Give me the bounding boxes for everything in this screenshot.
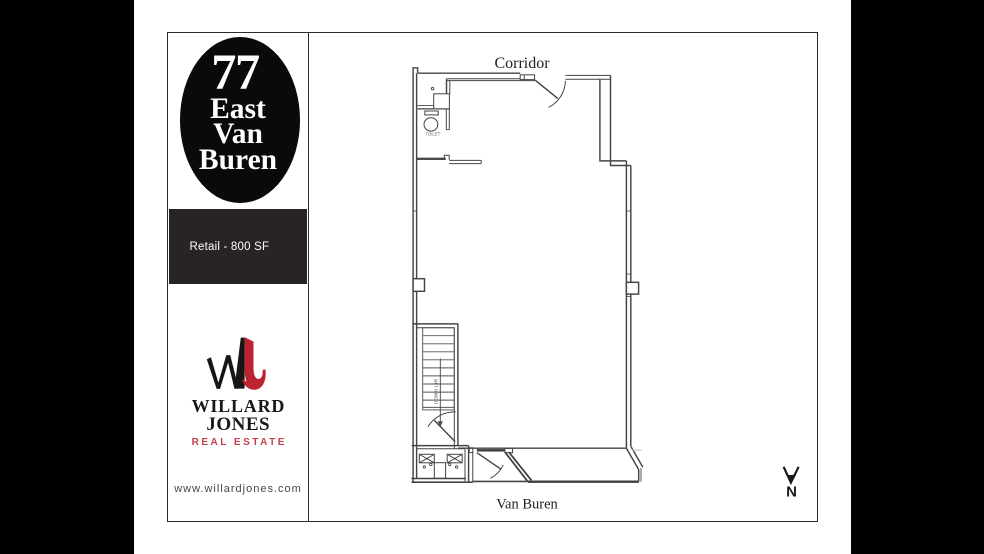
svg-text:TOILET: TOILET <box>425 131 440 136</box>
svg-text:N: N <box>786 484 797 501</box>
svg-text:DOWN 14R: DOWN 14R <box>434 378 439 404</box>
svg-text:Corridor: Corridor <box>494 55 550 72</box>
svg-text:Van Buren: Van Buren <box>496 496 558 512</box>
